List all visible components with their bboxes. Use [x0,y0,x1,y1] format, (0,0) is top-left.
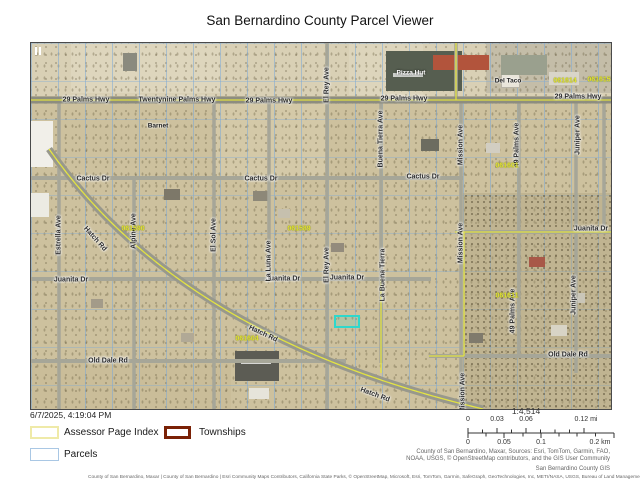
parcels-label: Parcels [64,448,97,461]
map-label: La Luna Ave [266,240,273,281]
map-label: La Buena Tierra [380,249,387,302]
map-label: Mission Ave [458,223,465,263]
map-label: Barnet [148,123,169,130]
map-label: Juniper Ave [571,275,578,315]
map-label: Juanita Dr [330,275,364,282]
map-label: El Rey Ave [324,67,331,103]
map-label: 29 Palms Hwy [555,94,602,101]
map-label: 29 Palms Hwy [63,97,110,104]
scale-km-tick: 0.05 [497,439,511,446]
map-label: 29 Palms Hwy [381,96,428,103]
map-label: Hatch Rd [82,225,108,253]
map-label: 061589 [287,226,310,233]
map-label: Cactus Dr [244,176,277,183]
scale-ratio: 1:4,514 [462,406,590,416]
map-labels-layer: 29 Palms HwyTwentynine Palms Hwy29 Palms… [31,43,611,409]
map-label: El Rey Ave [324,247,331,283]
townships-label: Townships [199,426,246,439]
map-label: Mission Ave [460,373,467,410]
map-canvas[interactable]: 29 Palms HwyTwentynine Palms Hwy29 Palms… [30,42,612,410]
map-label: 061611 [496,293,519,300]
scale-mi-tick: 0.03 [490,416,504,423]
map-label: Juniper Ave [575,115,582,155]
attribution-credit: San Bernardino County GIS [536,466,610,472]
map-label: Juanita Dr [574,226,608,233]
scale-ruler [462,427,622,439]
map-label: Twentynine Palms Hwy [139,97,216,104]
map-label: Pizza Hut [397,70,426,77]
map-label: 061590 [121,226,144,233]
map-label: 061601 [495,163,518,170]
map-label: Old Dale Rd [548,352,588,359]
map-label: El Sol Ave [211,218,218,252]
map-label: 49 Palms Ave [514,123,521,168]
map-label: Mission Ave [458,125,465,165]
timestamp: 6/7/2025, 4:19:04 PM [30,410,111,420]
page-title: San Bernardino County Parcel Viewer [0,13,640,28]
assessor-page-index-label: Assessor Page Index [64,426,159,439]
map-label: 29 Palms Hwy [246,98,293,105]
map-label: 061604 [235,336,258,343]
map-label: 061614 [553,78,576,85]
map-label: Old Dale Rd [88,358,128,365]
map-label: Cactus Dr [76,176,109,183]
map-label: Hatch Rd [359,386,390,403]
scale-km-tick: 0.2 km [589,439,610,446]
map-label: 061615 [587,77,610,84]
map-label: Estrella Ave [56,215,63,255]
parcels-swatch [30,448,59,461]
scale-bar: 1:4,514 0 0.03 0.06 0.12 mi 0 0.05 0.1 0… [462,406,634,454]
scale-mi-tick: 0 [466,416,470,423]
scale-mi-tick: 0.12 mi [575,416,598,423]
townships-swatch [164,426,191,439]
pause-icon [35,47,43,55]
attribution-sources: County of San Bernardino, Maxar, Sources… [290,449,610,463]
map-label: Del Taco [495,78,522,85]
map-label: Buena Tierra Ave [378,111,385,168]
attribution-bottom: County of San Bernardino, Maxar | County… [88,475,552,480]
assessor-page-index-swatch [30,426,59,439]
map-label: Cactus Dr [406,174,439,181]
scale-km-tick: 0.1 [536,439,546,446]
map-label: Juanita Dr [54,277,88,284]
scale-mi-tick: 0.06 [519,416,533,423]
scale-km-tick: 0 [466,439,470,446]
